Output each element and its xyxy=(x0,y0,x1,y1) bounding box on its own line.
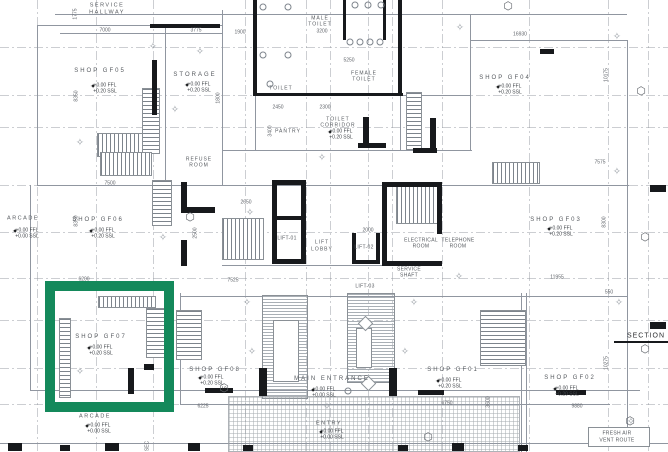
dim-8350: 8350 xyxy=(75,90,80,101)
room-female-toilet: TOILET xyxy=(352,78,375,83)
dim-10275: 10275 xyxy=(605,356,610,370)
room-shop-gf06: SHOP GF06 xyxy=(72,217,124,223)
grid-hex-marker: ⬡ xyxy=(503,0,513,13)
grid-star-marker: ✧ xyxy=(615,298,623,309)
wall-segment xyxy=(518,445,528,451)
grid-star-marker: ✧ xyxy=(455,272,463,283)
grid-star-marker: ✧ xyxy=(613,32,621,43)
wall-segment xyxy=(301,180,306,264)
stair-hatch xyxy=(142,88,160,154)
dim-8300: 8300 xyxy=(603,216,608,227)
wall-segment xyxy=(398,0,402,95)
room-shop-gf08: SHOP GF08 xyxy=(189,367,241,373)
wall-segment xyxy=(358,143,386,148)
dim-16930: 16930 xyxy=(513,33,527,38)
fixture-circle xyxy=(260,52,267,59)
grid-line-v xyxy=(648,0,649,452)
level-ssl: +0.20 SSL xyxy=(93,90,117,95)
wall-segment xyxy=(105,443,119,451)
room-arcade-left: ARCADE xyxy=(7,216,39,222)
grid-star-marker: ✧ xyxy=(318,153,326,164)
room-arcade-bottom: ARCADE xyxy=(79,414,111,420)
wall-segment xyxy=(253,0,257,95)
dim-3600: 3600 xyxy=(487,396,492,407)
dim-1775: 1775 xyxy=(74,8,79,19)
dim-2000: 2000 xyxy=(362,229,373,234)
room-service-shaft: SHAFT xyxy=(400,274,418,279)
grid-line-h xyxy=(0,278,668,279)
spot-level-marker: ✦ xyxy=(495,85,501,92)
level-ssl: +0.20 SSL xyxy=(91,235,115,240)
grid-star-marker: ✧ xyxy=(456,23,464,34)
fixture-circle xyxy=(378,2,385,9)
wall-segment xyxy=(152,60,157,115)
dim-7500: 7500 xyxy=(104,182,115,187)
dim-550: 550 xyxy=(605,291,613,296)
spot-level-marker: ✦ xyxy=(84,424,90,431)
wall-segment xyxy=(272,216,306,220)
wall-segment xyxy=(398,445,408,451)
room-telephone: ROOM xyxy=(450,245,467,250)
level-ssl: +0.20 SSL xyxy=(555,393,579,398)
spot-level-marker: ✦ xyxy=(435,379,441,386)
room-pantry: PANTRY xyxy=(275,130,301,135)
room-lift-lobby: LOBBY xyxy=(311,248,333,253)
fixture-circle xyxy=(345,388,352,395)
wall-line-h xyxy=(55,14,627,15)
stair-hatch xyxy=(152,180,172,226)
stair-hatch xyxy=(480,310,526,366)
stair-hatch xyxy=(406,92,422,150)
room-lift-01: LIFT-01 xyxy=(277,237,296,242)
spot-level-marker: ✦ xyxy=(546,227,552,234)
dim-10175: 10175 xyxy=(605,68,610,82)
stair-hatch xyxy=(492,162,540,184)
level-ssl: +0.20 SSL xyxy=(549,233,573,238)
grid-line-v xyxy=(529,0,530,452)
fixture-circle xyxy=(285,4,292,11)
grid-hex-marker: ⬡ xyxy=(636,85,646,98)
grid-star-marker: ✧ xyxy=(159,233,167,244)
grid-hex-marker: ⬡ xyxy=(640,231,650,244)
stair-hatch xyxy=(100,152,152,176)
grid-star-marker: ✧ xyxy=(248,347,256,358)
wall-segment xyxy=(181,240,187,266)
grid-star-marker: ✧ xyxy=(613,167,621,178)
wall-segment xyxy=(413,148,437,153)
dim-2450: 2450 xyxy=(272,106,283,111)
spot-level-marker: ✦ xyxy=(197,376,203,383)
label-entry: ENTRY xyxy=(316,421,342,427)
dim-1900: 1900 xyxy=(234,31,245,36)
dim-2650: 2650 xyxy=(240,201,251,206)
wall-segment xyxy=(8,443,22,451)
dim-5250: 5250 xyxy=(343,59,354,64)
dim-7525: 7525 xyxy=(227,279,238,284)
wall-line-h xyxy=(37,185,629,186)
room-shop-gf01: SHOP GF01 xyxy=(427,367,479,373)
level-ssl: +0.00 SSL xyxy=(15,235,39,240)
fixture-circle xyxy=(285,52,292,59)
wall-line-v xyxy=(526,293,527,452)
wall-line-v xyxy=(222,10,223,185)
grid-star-marker: ✧ xyxy=(410,298,418,309)
dim-1800: 1800 xyxy=(217,92,222,103)
wall-segment xyxy=(188,443,200,451)
spot-level-marker: ✦ xyxy=(12,229,18,236)
wall-segment xyxy=(243,445,253,451)
dim-3400: 3400 xyxy=(269,125,274,136)
planter-box xyxy=(356,328,372,368)
dim-3775: 3775 xyxy=(190,29,201,34)
fixture-circle xyxy=(377,39,384,46)
wall-segment xyxy=(382,182,442,187)
hatch-area xyxy=(228,396,520,452)
room-lift-03: LIFT-03 xyxy=(355,285,374,290)
wall-segment xyxy=(376,233,380,263)
wall-segment xyxy=(389,368,397,396)
wall-segment xyxy=(650,185,666,192)
fixture-circle xyxy=(352,2,359,9)
label-fresh-air: VENT ROUTE xyxy=(599,439,634,444)
wall-segment xyxy=(418,390,444,395)
grid-hex-marker: ⬡ xyxy=(423,431,433,444)
wall-segment xyxy=(259,368,267,396)
spot-level-marker: ✦ xyxy=(318,430,324,437)
dim-2300: 2300 xyxy=(319,106,330,111)
spot-level-marker: ✦ xyxy=(90,84,96,91)
wall-segment xyxy=(272,180,277,264)
wall-segment xyxy=(60,445,70,451)
floorplan-canvas: ✧✧✧✧✧✧✧✧✧✧✧✧✧✧✧✧✧✧✧⬡⬡⬡⬡⬡⬡10⬡⬡SERVICEHALL… xyxy=(0,0,668,452)
room-storage: STORAGE xyxy=(173,72,216,78)
spot-level-marker: ✦ xyxy=(327,130,333,137)
wall-line-v xyxy=(165,25,166,185)
label-fresh-air: FRESH AIR xyxy=(602,432,631,437)
wall-line-v xyxy=(627,40,628,443)
wall-segment xyxy=(343,0,346,40)
dim-8350b: 8350 xyxy=(75,215,80,226)
level-ssl: +0.20 SSL xyxy=(438,385,462,390)
room-electrical: ROOM xyxy=(413,245,430,250)
wall-segment xyxy=(452,443,464,451)
wall-segment xyxy=(272,259,306,264)
wall-segment xyxy=(382,261,442,266)
stair-hatch xyxy=(176,310,202,360)
wall-line-h xyxy=(470,40,628,41)
dim-2500: 2500 xyxy=(194,227,199,238)
spot-level-marker: ✦ xyxy=(88,229,94,236)
label-section-bottom: SEC xyxy=(146,441,151,451)
room-shop-gf03: SHOP GF03 xyxy=(530,217,582,223)
wall-segment xyxy=(650,322,666,329)
grid-star-marker: ✧ xyxy=(171,105,179,116)
wall-segment xyxy=(540,49,554,54)
fixture-circle xyxy=(367,39,374,46)
stair-hatch xyxy=(396,186,440,224)
dim-6750: 6750 xyxy=(441,402,452,407)
room-lift-lobby: LIFT xyxy=(315,241,329,246)
level-ssl: +0.20 SSL xyxy=(200,382,224,387)
label-service-hallway: HALLWAY xyxy=(89,10,125,16)
grid-star-marker: ✧ xyxy=(76,138,84,149)
grid-line-v xyxy=(330,0,331,452)
level-ssl: +0.00 SSL xyxy=(87,430,111,435)
spot-level-marker: ✦ xyxy=(552,387,558,394)
dim-7000: 7000 xyxy=(99,29,110,34)
planter-box xyxy=(273,320,299,382)
wall-segment xyxy=(253,93,403,96)
wall-line-v xyxy=(470,14,471,150)
room-shop-gf05: SHOP GF05 xyxy=(74,68,126,74)
grid-star-marker: ✧ xyxy=(401,347,409,358)
wall-segment xyxy=(150,24,220,28)
wall-segment xyxy=(437,182,442,234)
room-lift-02: LIFT-02 xyxy=(354,246,373,251)
label-service-hallway: SERVICE xyxy=(90,3,125,9)
room-toilet: TOILET xyxy=(269,87,292,92)
grid-star-marker: ✧ xyxy=(323,402,331,413)
fixture-circle xyxy=(357,39,364,46)
room-refuse: ROOM xyxy=(189,164,209,169)
dim-6225: 6225 xyxy=(197,405,208,410)
label-main-entrance: MAIN ENTRANCE xyxy=(294,376,370,382)
level-ssl: +0.20 SSL xyxy=(187,89,211,94)
wall-segment xyxy=(382,182,387,266)
level-ssl: +0.20 SSL xyxy=(498,91,522,96)
fixture-circle xyxy=(347,39,354,46)
grid-star-marker: ✧ xyxy=(149,42,157,53)
stair-hatch xyxy=(222,218,264,260)
dim-9880: 9880 xyxy=(571,405,582,410)
grid-star-marker: ✧ xyxy=(243,298,251,309)
spot-level-marker: ✦ xyxy=(310,388,316,395)
dim-3200: 3200 xyxy=(316,30,327,35)
wall-line-v xyxy=(37,25,38,185)
grid-line-h xyxy=(0,47,668,48)
grid-star-marker: ✧ xyxy=(196,47,204,58)
grid-star-marker: ✧ xyxy=(246,208,254,219)
grid-hex-marker: ⬡ xyxy=(185,211,195,224)
room-male-toilet: TOILET xyxy=(308,23,331,28)
label-section-right: SECTION xyxy=(627,333,665,340)
dim-7575: 7575 xyxy=(594,161,605,166)
grid-hex-marker: ⬡ xyxy=(640,343,650,356)
wall-segment xyxy=(352,260,380,264)
room-shop-gf02: SHOP GF02 xyxy=(544,375,596,381)
wall-segment xyxy=(430,118,436,150)
dim-11955: 11955 xyxy=(550,276,564,281)
grid-hex-marker: ⬡ xyxy=(625,415,635,428)
fixture-circle xyxy=(260,4,267,11)
highlight-box xyxy=(45,281,174,412)
fixture-circle xyxy=(365,2,372,9)
room-shop-gf04: SHOP GF04 xyxy=(479,75,531,81)
spot-level-marker: ✦ xyxy=(184,83,190,90)
